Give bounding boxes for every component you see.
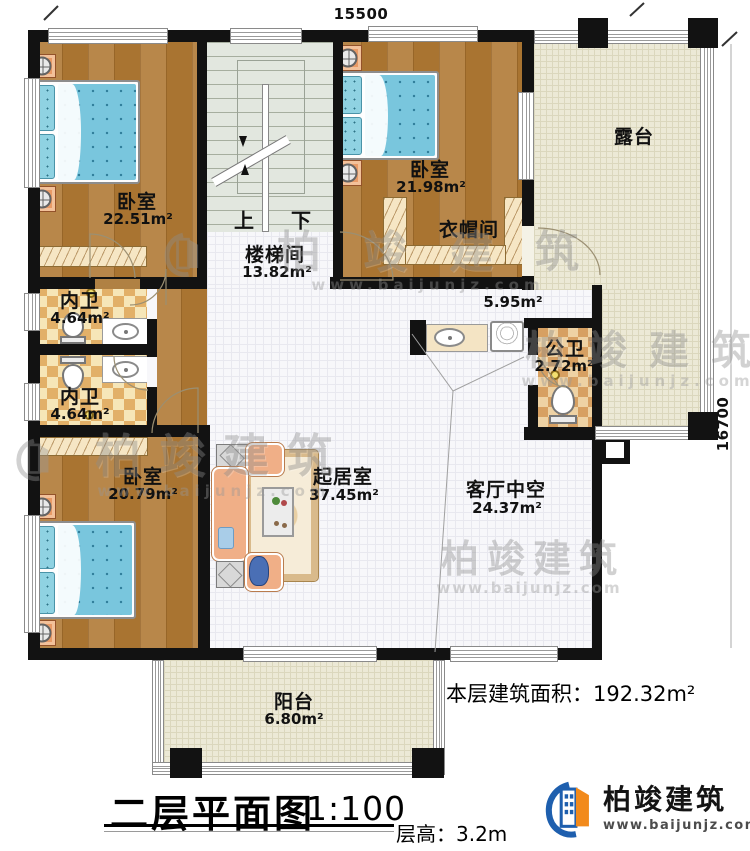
- dim-tick: [630, 3, 644, 16]
- person-figure: [249, 556, 269, 586]
- room-area-bath-public: 2.72m²: [534, 359, 593, 375]
- column-terrace-top-right: [688, 18, 718, 48]
- cup-icon: [282, 523, 287, 528]
- door-gap-bath2: [147, 357, 157, 387]
- stair-up-label: 上: [234, 211, 254, 232]
- stair-arrow-up: [241, 164, 249, 175]
- toilet-bowl: [551, 385, 575, 415]
- floor-height-label: 层高：3.2m: [396, 818, 507, 847]
- wall-bath-public-left-lower: [528, 385, 538, 427]
- room-label-closet: 衣帽间: [439, 221, 499, 241]
- wardrobe-closet-left: [383, 197, 407, 265]
- door-gap-bath1: [147, 289, 157, 319]
- stair-down-label: 下: [291, 211, 311, 232]
- floor-area-note: 本层建筑面积：192.32m²: [446, 678, 695, 708]
- bed-top-right: [336, 71, 439, 160]
- title-scale: 1:100: [306, 789, 406, 828]
- duct-inner: [606, 442, 624, 458]
- plant-icon: [272, 497, 280, 505]
- room-area-bath1: 4.64m²: [50, 311, 109, 327]
- brand-name: 柏竣建筑: [603, 786, 750, 814]
- window-bedroom1-left: [24, 78, 40, 188]
- wall-bath-public-bottom: [524, 427, 602, 440]
- bed-top-left: [29, 80, 140, 184]
- wall-bath-divider: [28, 344, 157, 355]
- toilet-tank: [60, 336, 86, 344]
- floor-terrace-upper: [534, 44, 700, 290]
- railing-terrace-right: [700, 30, 714, 440]
- window-bedroom1-top: [48, 28, 168, 44]
- floor-corridor: [155, 280, 207, 432]
- bed-sheet: [362, 75, 388, 156]
- washing-machine: [490, 321, 524, 352]
- page-title: 二层平面图: [110, 783, 315, 838]
- column-balcony-right: [412, 748, 444, 778]
- window-bedroom3-left: [24, 515, 40, 633]
- bed-bottom-left: [29, 521, 136, 619]
- window-bath2-left: [24, 383, 40, 421]
- window-bedroom2-terrace: [518, 92, 534, 180]
- room-label-void: 客厅中空: [466, 481, 546, 501]
- door-gap-terrace: [522, 226, 534, 276]
- room-area-stairwell: 13.82m²: [242, 265, 312, 281]
- wall-stair-left: [197, 40, 207, 285]
- sofa-cloth: [218, 527, 234, 549]
- armchair-top: [246, 443, 284, 476]
- title-underline: [104, 824, 394, 827]
- dim-tick: [722, 32, 737, 46]
- window-bath1-left: [24, 293, 40, 331]
- bed-sheet: [55, 84, 81, 180]
- toilet-tank: [60, 356, 86, 364]
- sink: [112, 323, 139, 340]
- floor-terrace-lower: [602, 290, 700, 426]
- bed-sheet: [55, 525, 81, 615]
- room-area-bedroom-tr: 21.98m²: [396, 180, 466, 196]
- room-area-void: 24.37m²: [472, 501, 542, 517]
- room-label-terrace: 露台: [614, 128, 654, 148]
- stair-arrow-down: [239, 136, 247, 147]
- window-stair-top: [230, 28, 302, 44]
- window-void-bottom: [450, 646, 558, 662]
- sink: [112, 361, 139, 378]
- wall-stair-right: [333, 40, 343, 285]
- toilet-tank: [549, 415, 577, 424]
- brand-logo-icon: [543, 778, 595, 840]
- brand-url: www.baijunjz.com: [603, 818, 750, 833]
- sliding-door-balcony: [243, 646, 377, 662]
- wall-bedroom2-bottom: [330, 277, 530, 289]
- hall-sink: [434, 328, 465, 347]
- wardrobe-bedroom-top-left: [34, 246, 147, 267]
- column-terrace-top-left: [578, 18, 608, 48]
- door-gap-bedroom1: [95, 279, 140, 289]
- window-bedroom2-top: [368, 26, 478, 42]
- room-area-bedroom-tl: 22.51m²: [103, 212, 173, 228]
- dim-tick: [44, 6, 58, 20]
- railing-balcony-left: [152, 660, 164, 775]
- coffee-table: [262, 487, 294, 537]
- wardrobe-bedroom-bottom-left: [36, 437, 148, 456]
- railing-terrace-top: [534, 30, 712, 44]
- flower-icon: [281, 500, 287, 506]
- wall-hallway-stub: [410, 320, 426, 355]
- wardrobe-closet-bottom: [405, 245, 506, 265]
- column-balcony-left: [170, 748, 202, 778]
- title-underline-thin: [104, 831, 394, 832]
- wall-bedroom3-right: [198, 425, 210, 660]
- room-area-balcony: 6.80m²: [264, 712, 323, 728]
- dim-top: 15500: [334, 7, 389, 23]
- brand-logo: 柏竣建筑 www.baijunjz.com: [543, 778, 750, 840]
- room-area-living: 37.45m²: [309, 488, 379, 504]
- dim-right: 16700: [716, 397, 732, 452]
- bed-pillows: [340, 76, 362, 155]
- room-area-bedroom-bl: 20.79m²: [108, 487, 178, 503]
- wall-right-main: [592, 285, 602, 660]
- wall-bath2-bottom: [28, 425, 210, 437]
- cup-icon: [274, 521, 279, 526]
- wall-bath-public-left-upper: [528, 327, 538, 355]
- floor-plan-canvas: 15500 16700 卧室 22.51m² 上 下 楼梯间 13.82m² 卧…: [0, 0, 750, 851]
- room-area-hallway: 5.95m²: [483, 295, 542, 311]
- side-table-bottom: [216, 561, 244, 588]
- room-area-bath2: 4.64m²: [50, 407, 109, 423]
- room-label-living: 起居室: [313, 468, 373, 488]
